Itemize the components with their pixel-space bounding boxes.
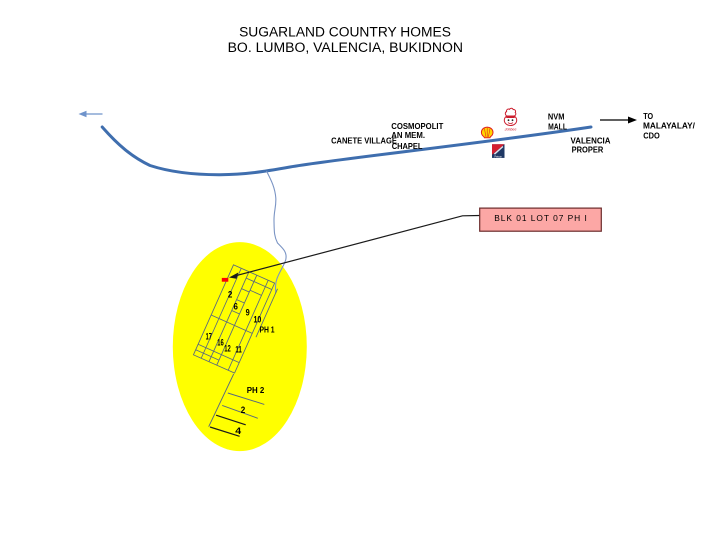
svg-text:PH 1: PH 1 (259, 326, 275, 335)
svg-text:PH 2: PH 2 (247, 386, 265, 395)
svg-text:MALL: MALL (548, 121, 567, 131)
svg-text:CHAPEL: CHAPEL (392, 141, 423, 151)
svg-text:2: 2 (241, 405, 246, 415)
svg-text:AN MEM.: AN MEM. (391, 130, 425, 140)
svg-text:2: 2 (228, 290, 233, 300)
svg-text:MALAYALAY/: MALAYALAY/ (643, 120, 696, 130)
svg-text:PROPER: PROPER (572, 144, 604, 154)
svg-text:11: 11 (235, 344, 242, 354)
svg-text:Jollibee: Jollibee (504, 128, 517, 132)
svg-text:BO. LUMBO, VALENCIA, BUKIDNON: BO. LUMBO, VALENCIA, BUKIDNON (228, 40, 463, 56)
svg-text:9: 9 (246, 307, 250, 317)
svg-text:10: 10 (254, 314, 262, 324)
svg-text:NVM: NVM (548, 111, 565, 121)
svg-text:BLK 01 LOT 07 PH I: BLK 01 LOT 07 PH I (494, 213, 587, 223)
svg-text:TO: TO (643, 111, 653, 121)
svg-text:12: 12 (224, 344, 231, 354)
svg-text:4: 4 (235, 426, 242, 436)
svg-text:SUGARLAND COUNTRY HOMES: SUGARLAND COUNTRY HOMES (239, 25, 451, 41)
svg-text:CDO: CDO (643, 131, 660, 141)
svg-text:16: 16 (217, 337, 224, 347)
svg-text:CANETE VILLAGE: CANETE VILLAGE (331, 135, 397, 145)
svg-text:17: 17 (206, 331, 212, 341)
svg-text:Petron: Petron (494, 155, 502, 159)
svg-text:6: 6 (234, 302, 238, 312)
